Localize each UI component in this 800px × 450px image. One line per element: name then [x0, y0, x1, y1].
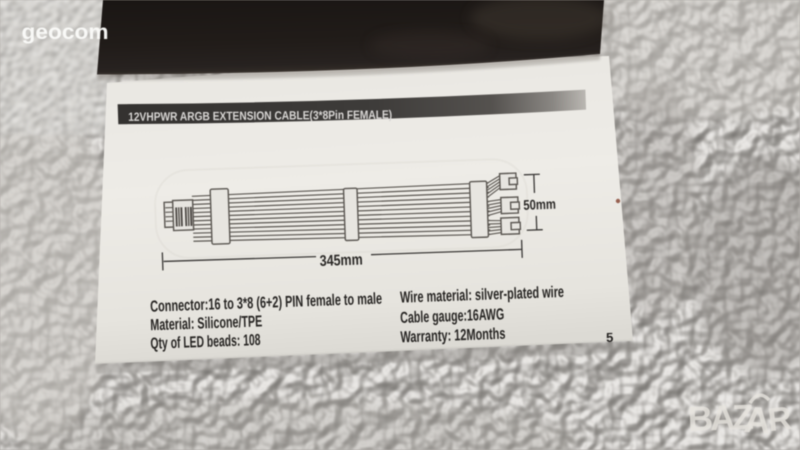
svg-text:geocom: geocom: [22, 20, 109, 44]
svg-text:5: 5: [606, 330, 614, 345]
svg-text:50mm: 50mm: [523, 196, 556, 213]
svg-text:12VHPWR ARGB EXTENSION CABLE(3: 12VHPWR ARGB EXTENSION CABLE(3*8Pin FEMA…: [128, 108, 392, 124]
svg-text:345mm: 345mm: [319, 251, 363, 269]
svg-text:Cable gauge:16AWG: Cable gauge:16AWG: [400, 306, 505, 327]
svg-text:R: R: [766, 399, 794, 438]
